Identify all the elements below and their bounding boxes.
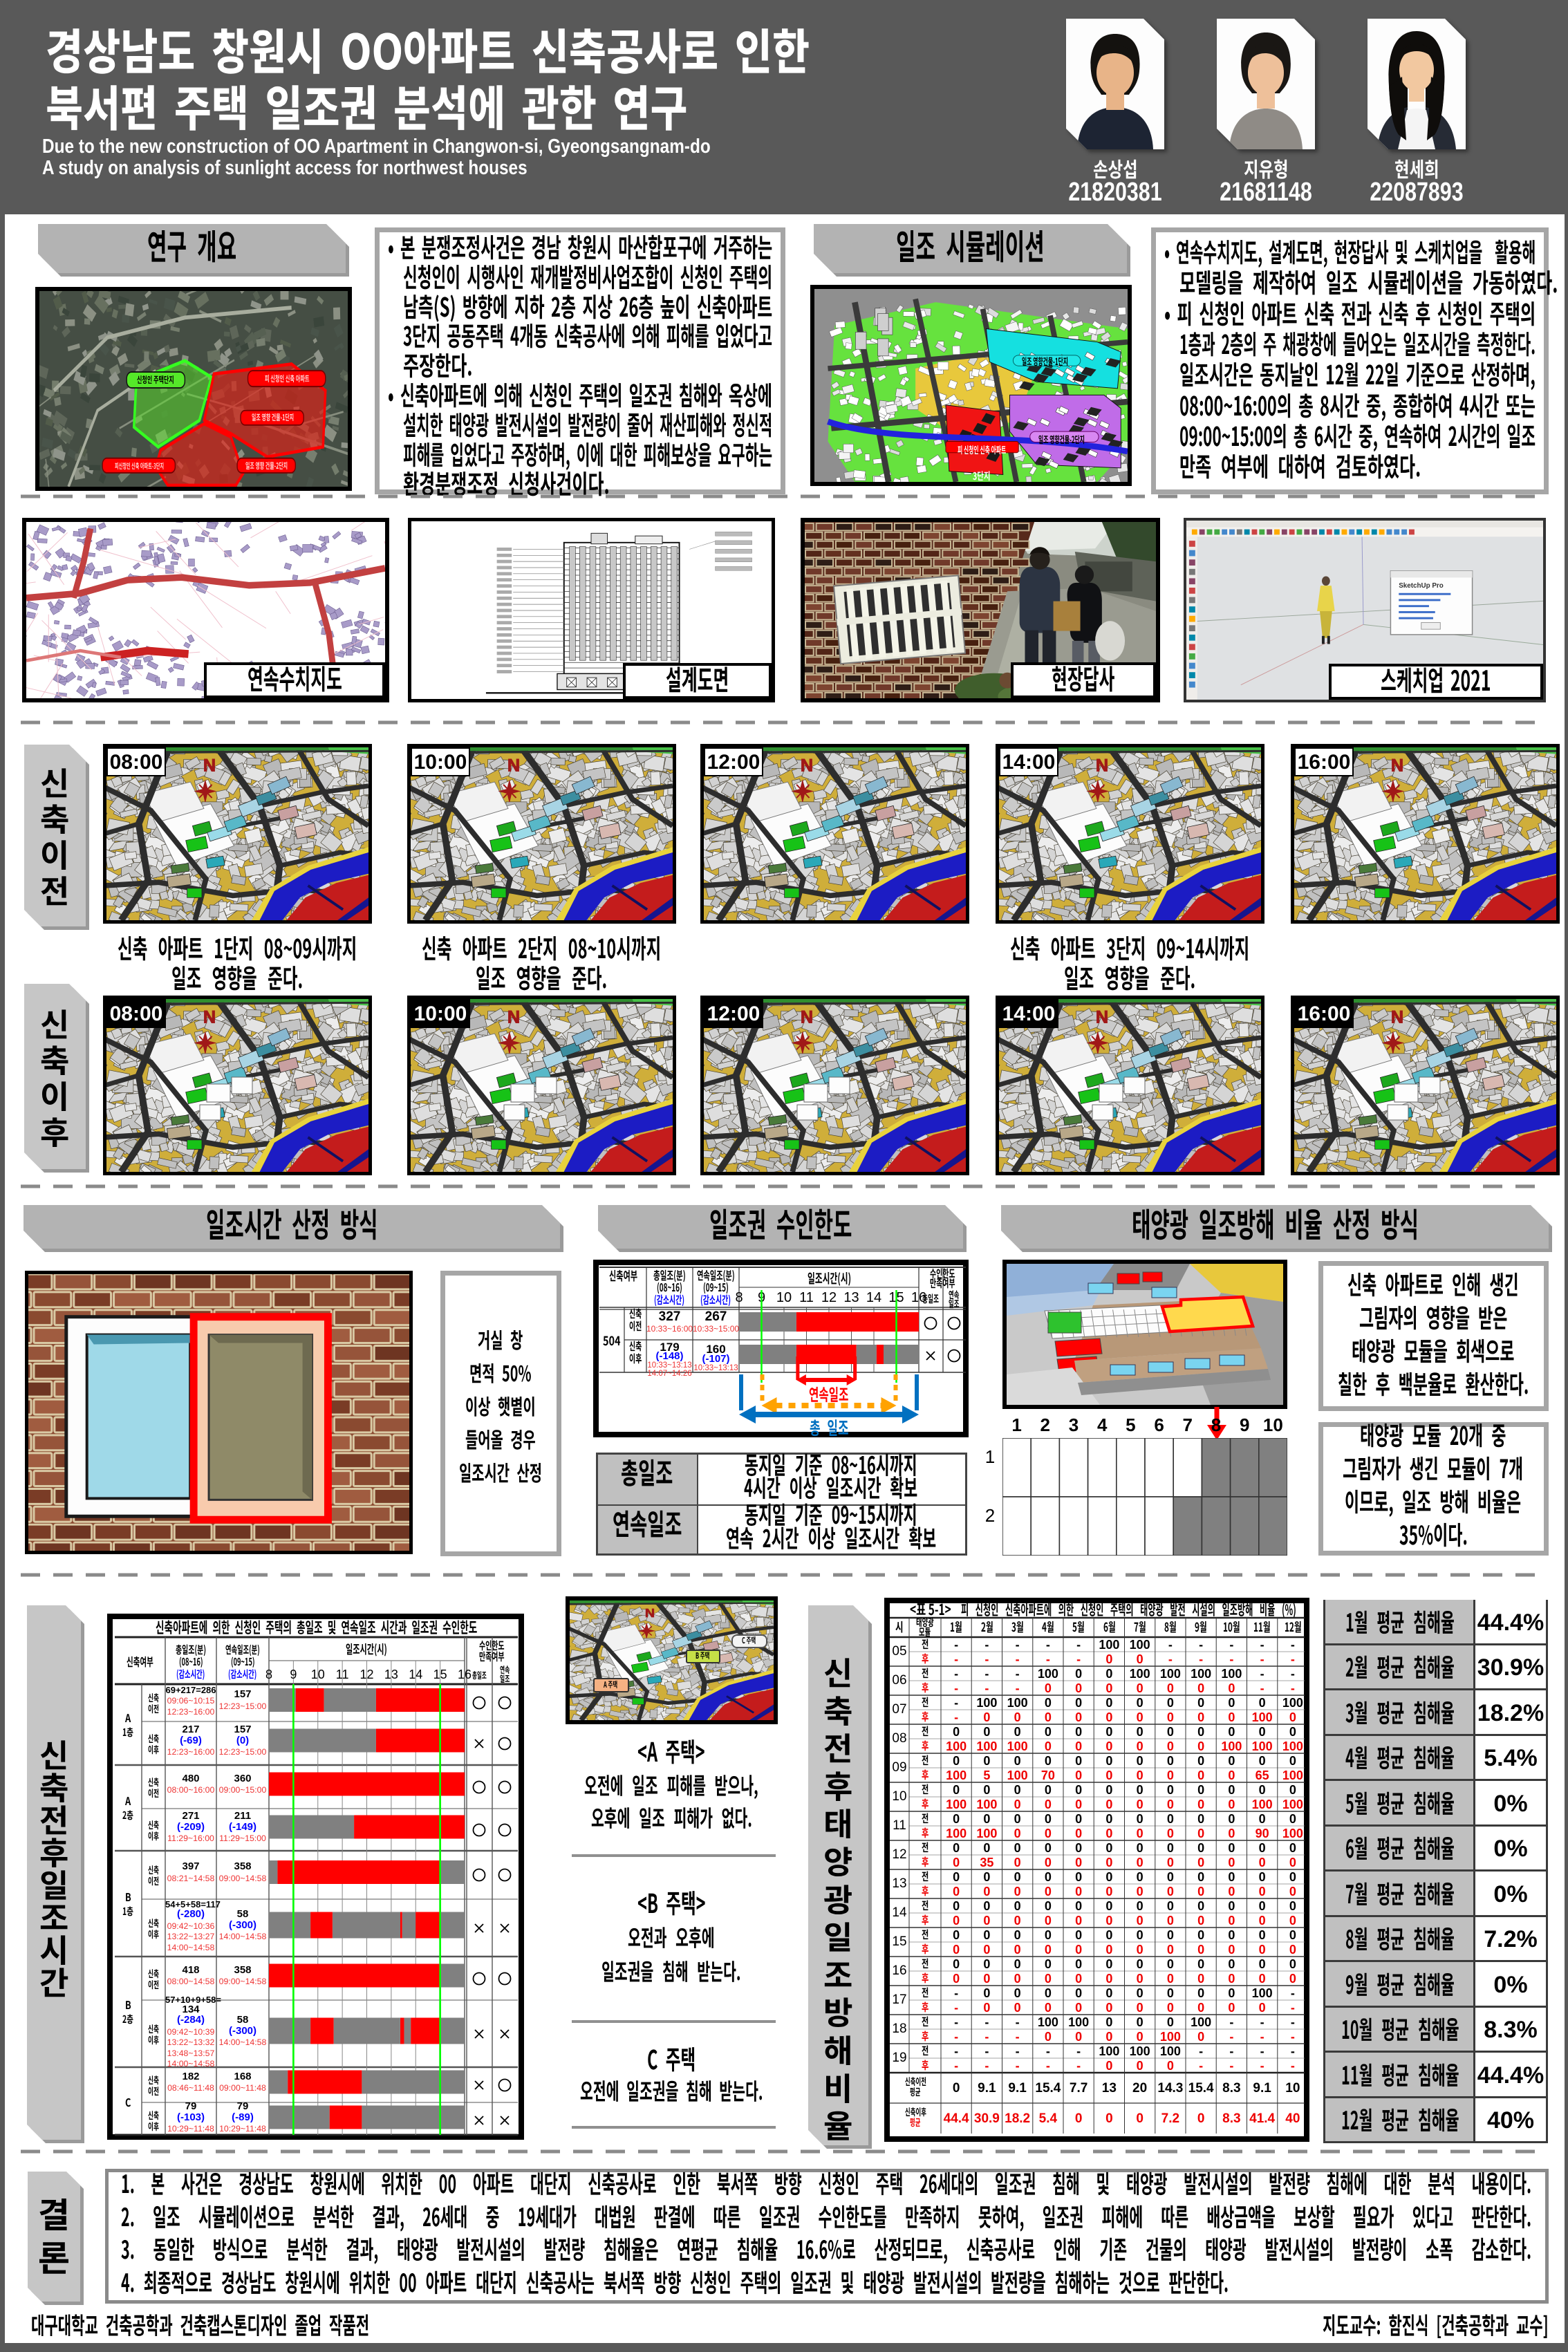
svg-text:SketchUp Pro: SketchUp Pro xyxy=(1399,582,1444,590)
